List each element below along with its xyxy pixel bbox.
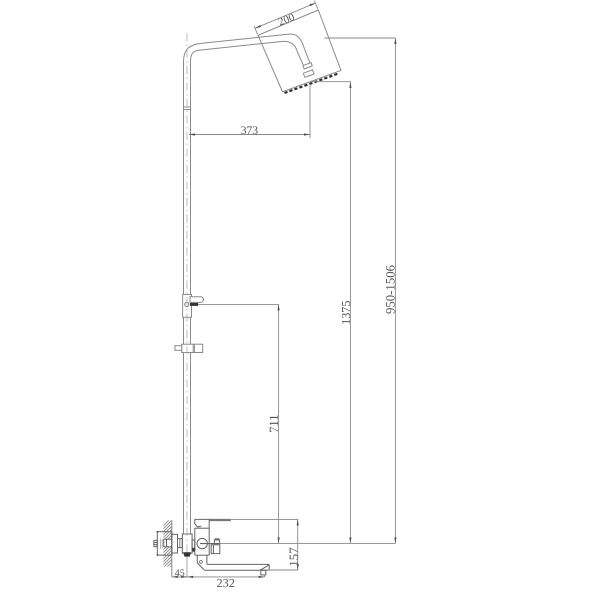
- svg-text:373: 373: [241, 124, 259, 137]
- svg-text:711: 711: [267, 414, 281, 432]
- svg-text:232: 232: [217, 576, 235, 590]
- svg-text:1375: 1375: [339, 301, 353, 325]
- svg-text:950-1506: 950-1506: [384, 264, 398, 314]
- svg-text:157: 157: [287, 547, 301, 567]
- svg-text:45: 45: [175, 568, 185, 579]
